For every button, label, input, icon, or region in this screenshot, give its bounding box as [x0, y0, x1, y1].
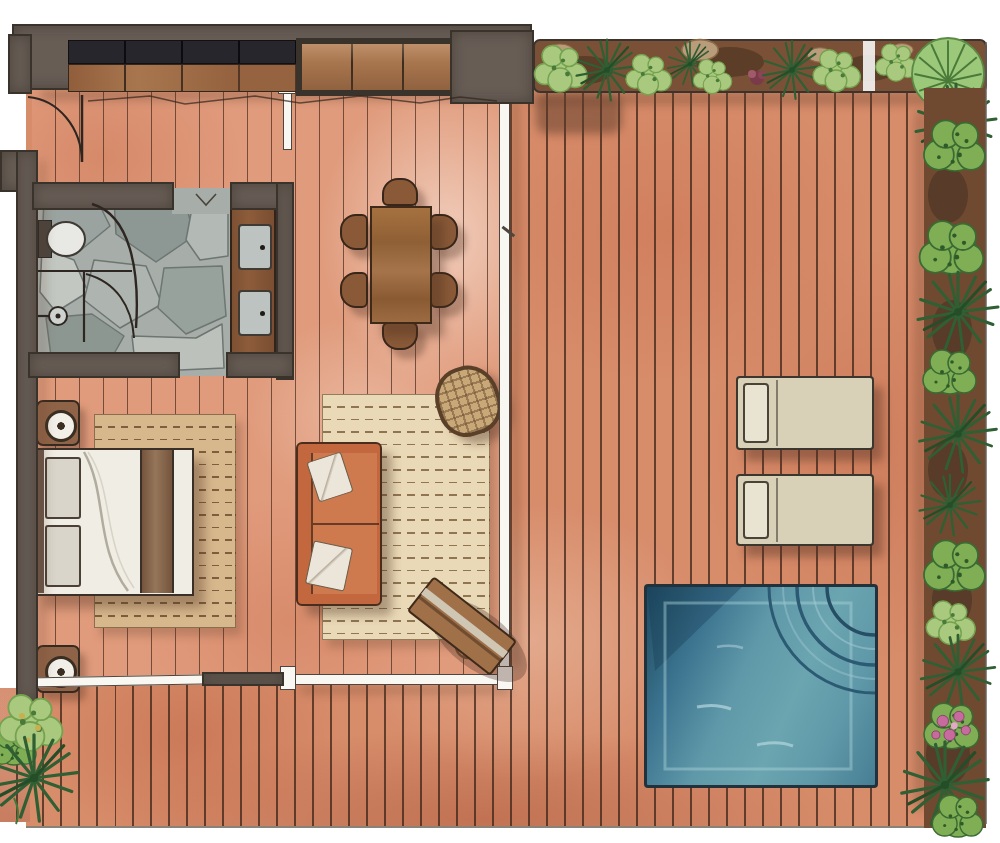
bathroom-entry-floor	[172, 188, 230, 214]
lounger-pillow	[743, 481, 769, 539]
shadow-right-planter	[914, 110, 928, 810]
top-right-wall-block	[450, 30, 534, 104]
lounger-backrest-line	[776, 380, 778, 446]
dining-chair-bottom	[382, 322, 418, 350]
shadow-south-track	[300, 686, 510, 694]
east-glass-wall	[499, 86, 510, 680]
sofa	[296, 442, 382, 606]
bathroom-north-wall-left	[32, 182, 174, 210]
shadow-top-planter	[530, 92, 970, 105]
bed-throw-runner	[140, 450, 174, 593]
dining-chair-right-1	[430, 214, 458, 250]
sun-lounger-top	[736, 376, 874, 450]
cabinet-frame	[296, 38, 460, 96]
bathroom-south-wall-left	[28, 352, 180, 378]
dining-chair-top	[382, 178, 418, 206]
lounger-backrest-line	[776, 478, 778, 542]
wardrobe-wood-strip	[68, 64, 298, 92]
southeast-corner-post	[497, 666, 513, 690]
floor-plan-canvas	[0, 0, 1000, 843]
sun-lounger-bottom	[736, 474, 874, 546]
vanity-counter	[230, 208, 276, 354]
dining-chair-right-2	[430, 272, 458, 308]
deck-floor-bottom-left	[0, 688, 30, 822]
plunge-pool	[644, 584, 878, 788]
bathroom-south-wall-right	[226, 352, 294, 378]
double-bed	[34, 448, 194, 596]
cabinet-wood-panels	[302, 44, 454, 90]
vanity-east-wall	[276, 182, 294, 380]
pool-water-detail	[647, 587, 875, 785]
partition-rod	[283, 88, 292, 150]
dining-chair-left-2	[340, 272, 368, 308]
entry-left-wall-cap	[8, 34, 32, 94]
south-glass-track-living	[294, 674, 506, 685]
west-wall	[16, 150, 38, 702]
wardrobe-dark-strip	[68, 40, 298, 64]
toilet-bowl	[46, 221, 86, 257]
south-wall-stub	[202, 672, 284, 686]
vanity-sink-top	[238, 224, 272, 270]
dining-chair-left-1	[340, 214, 368, 250]
sofa-cushion-divider	[313, 523, 379, 525]
dining-table	[370, 206, 432, 324]
shadow-east-glass	[511, 96, 520, 668]
lounger-pillow	[743, 383, 769, 443]
vanity-sink-bottom	[238, 290, 272, 336]
shadow-west-wall	[38, 160, 46, 690]
